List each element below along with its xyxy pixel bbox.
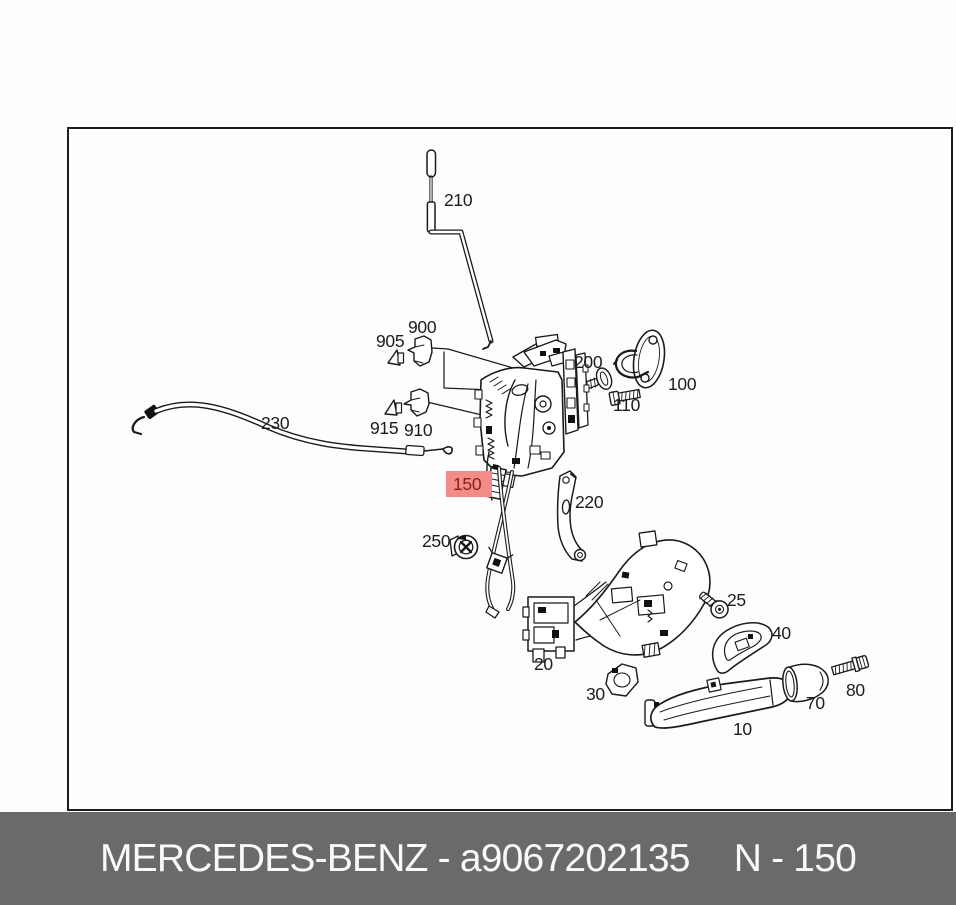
- part-label-250: 250: [422, 532, 450, 550]
- part-label-910: 910: [404, 421, 432, 439]
- labels-layer: 2109009059159102302001001101502202502025…: [0, 0, 956, 812]
- parts-catalog-image: 2109009059159102302001001101502202502025…: [0, 0, 956, 905]
- part-label-915: 915: [370, 419, 398, 437]
- part-label-905: 905: [376, 332, 404, 350]
- part-label-900: 900: [408, 318, 436, 336]
- part-label-70: 70: [806, 694, 825, 712]
- part-label-200: 200: [574, 353, 602, 371]
- caption-bar: MERCEDES-BENZ - a9067202135 N - 150: [0, 812, 956, 905]
- part-label-100: 100: [668, 375, 696, 393]
- part-label-210: 210: [444, 191, 472, 209]
- part-label-220: 220: [575, 493, 603, 511]
- part-label-230: 230: [261, 414, 289, 432]
- part-label-10: 10: [733, 720, 752, 738]
- part-label-40: 40: [772, 624, 791, 642]
- caption-brand-and-part-number: MERCEDES-BENZ - a9067202135: [100, 837, 690, 881]
- part-label-20: 20: [534, 655, 553, 673]
- part-label-80: 80: [846, 681, 865, 699]
- part-label-150: 150: [446, 471, 492, 497]
- part-label-110: 110: [613, 396, 640, 414]
- part-label-30: 30: [586, 685, 605, 703]
- part-label-25: 25: [727, 591, 746, 609]
- caption-reference-number: N - 150: [734, 837, 856, 881]
